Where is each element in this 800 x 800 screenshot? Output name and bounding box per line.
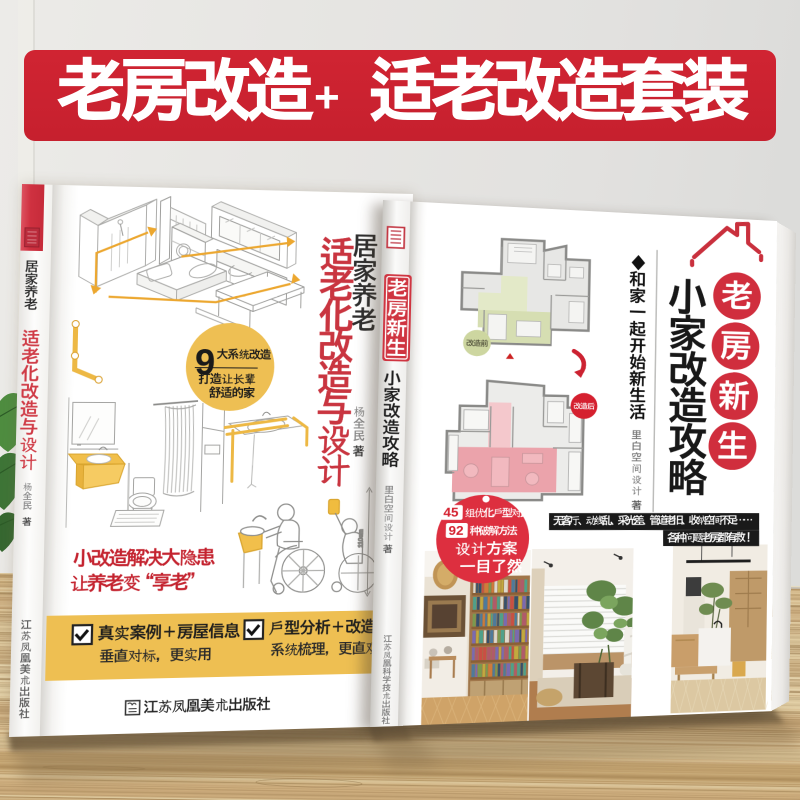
svg-text:110cm: 110cm xyxy=(358,529,365,548)
svg-text:+: + xyxy=(314,73,340,122)
svg-text:45: 45 xyxy=(443,506,459,520)
svg-text:92: 92 xyxy=(448,524,464,538)
svg-text:9: 9 xyxy=(194,341,215,382)
